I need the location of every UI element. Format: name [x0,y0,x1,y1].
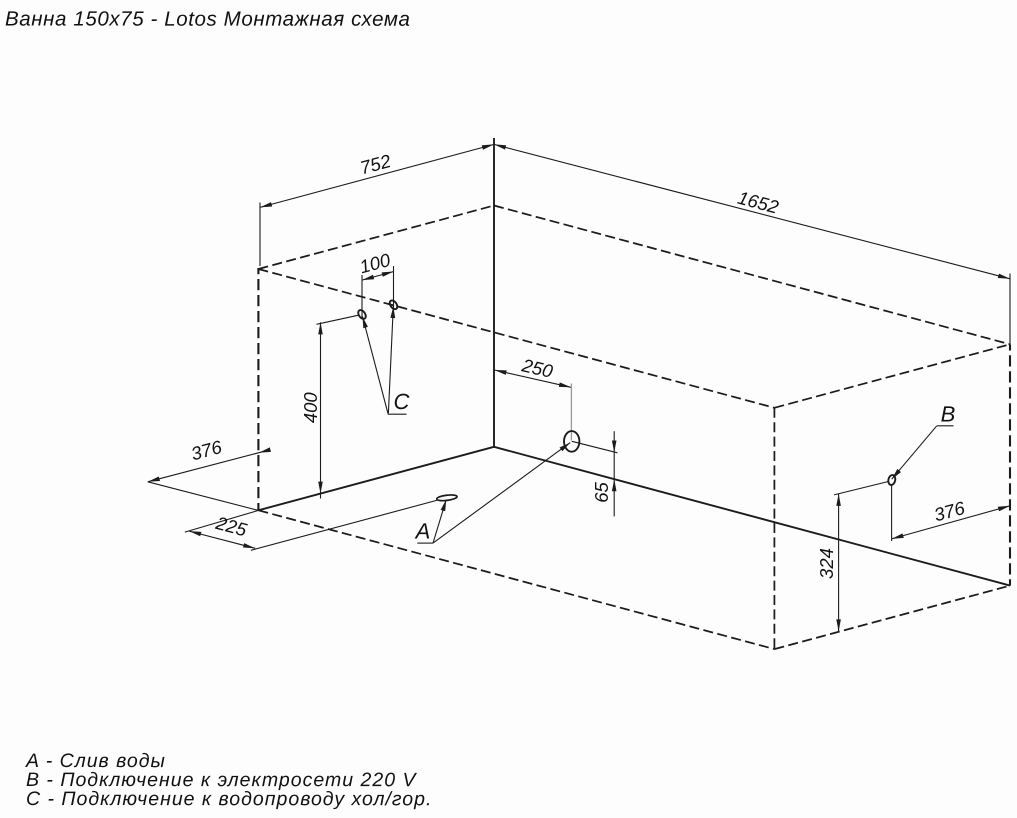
svg-text:65: 65 [591,482,612,503]
svg-text:Ванна 150x75 - Lotos Монтажная: Ванна 150x75 - Lotos Монтажная схема [5,8,411,31]
svg-text:A: A [414,518,431,543]
svg-text:C: C [394,389,410,414]
svg-text:400: 400 [300,392,321,424]
svg-text:C - Подключение к водопроводу: C - Подключение к водопроводу хол/гор. [26,788,432,810]
svg-text:B: B [941,401,956,426]
svg-text:324: 324 [816,548,837,579]
